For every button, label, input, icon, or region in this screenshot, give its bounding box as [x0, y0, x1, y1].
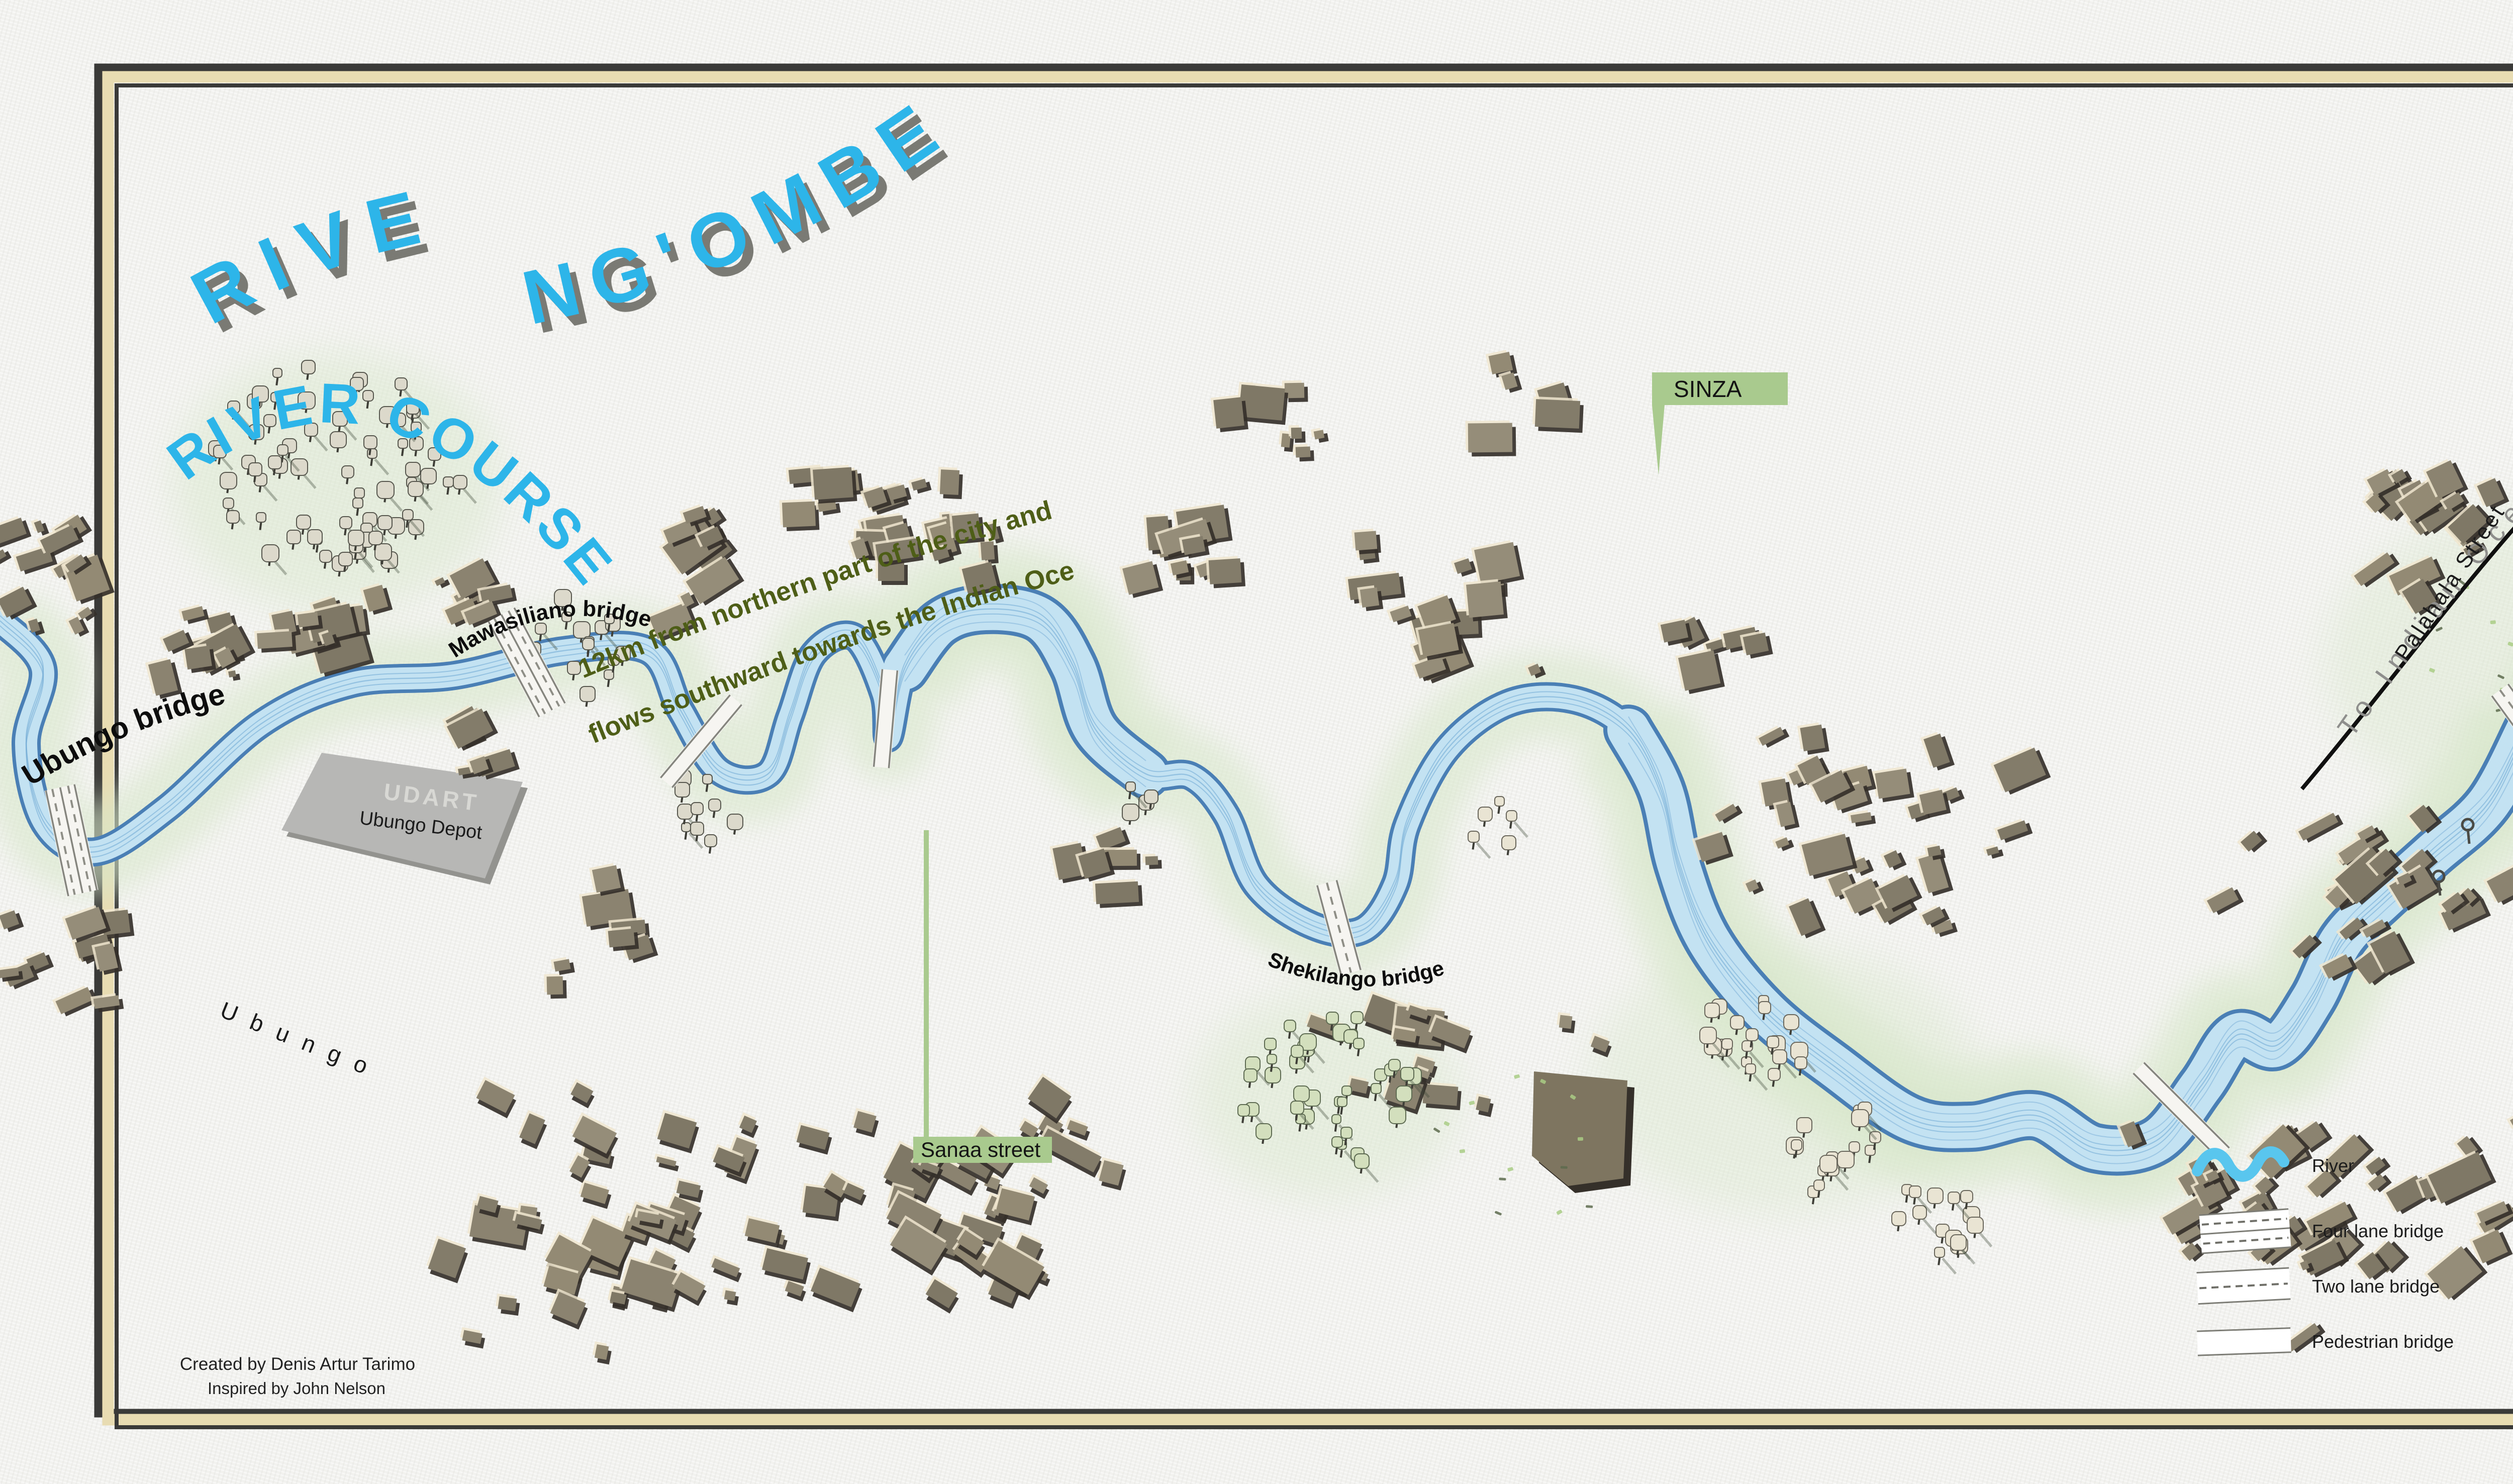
credits: Created by Denis Artur Tarimo Inspired b… [180, 1354, 415, 1398]
building [178, 603, 209, 625]
sanaa-leader-line [924, 830, 929, 1139]
building [551, 956, 575, 976]
building [1473, 1094, 1495, 1117]
building [908, 475, 932, 496]
building [793, 1122, 834, 1155]
building [1994, 817, 2033, 845]
tree [1506, 811, 1527, 837]
legend-pedestrian-label: Pedestrian bridge [2312, 1331, 2454, 1352]
scrub-mark [1469, 1101, 1475, 1105]
building [546, 1289, 591, 1330]
building [2506, 1108, 2513, 1135]
building [568, 1112, 621, 1159]
legend-two-lane-label: Two lane bridge [2312, 1276, 2440, 1297]
title-word2: NG'OMBE [515, 80, 964, 341]
legend-four-lane-swatch [2199, 1209, 2291, 1253]
building [810, 464, 857, 504]
building [1920, 730, 1955, 772]
scrub-mark [1507, 1167, 1514, 1172]
building [1142, 853, 1162, 869]
building [921, 1276, 962, 1314]
scrub-mark [1499, 1177, 1506, 1180]
building [1755, 723, 1789, 751]
legend-two-lane-swatch [2196, 1268, 2290, 1304]
legend-four-lane-label: Four lane bridge [2312, 1221, 2444, 1241]
tree [580, 686, 595, 707]
building [1872, 765, 1914, 803]
tree [1468, 831, 1490, 858]
building [721, 1288, 740, 1306]
building [1466, 420, 1516, 456]
sinza-label: SINZA [1674, 376, 1742, 402]
tree [1927, 1188, 1943, 1209]
building [1351, 528, 1381, 555]
scrub-mark [1494, 1211, 1502, 1216]
building [1772, 834, 1794, 853]
building [735, 1112, 761, 1138]
building [1786, 895, 1826, 941]
building [780, 499, 820, 531]
building [653, 1153, 681, 1171]
tree [1122, 804, 1139, 825]
tree [1892, 1212, 1906, 1231]
building [591, 1341, 613, 1364]
building [1293, 444, 1314, 462]
building [589, 862, 625, 897]
tree [1502, 836, 1516, 855]
sanaa-callout: Sanaa street [913, 830, 1052, 1163]
tree [1951, 1235, 1974, 1264]
building [1990, 744, 2051, 797]
building [1119, 558, 1163, 600]
sanaa-street-label: Sanaa street [921, 1138, 1040, 1161]
building [424, 1235, 470, 1283]
scrub-mark [1556, 1210, 1563, 1215]
river-map-svg: UDART Ubungo Depot RIVER NG'OMBE RIVER N… [0, 0, 2513, 1484]
building [1532, 397, 1584, 433]
building [2203, 883, 2244, 918]
building [459, 1327, 487, 1349]
building [1675, 647, 1725, 696]
building [654, 1110, 701, 1153]
building [1773, 799, 1799, 832]
scrub-mark [1586, 1205, 1593, 1208]
frame-tan-band [108, 77, 2513, 1420]
building [577, 1179, 613, 1209]
tree [1913, 1206, 1936, 1233]
building [1797, 722, 1829, 756]
building [0, 907, 24, 934]
building [472, 1076, 519, 1118]
building [515, 1110, 549, 1149]
tree [691, 803, 703, 822]
tree [727, 814, 743, 835]
building [566, 1079, 598, 1109]
building [807, 1264, 864, 1312]
legend-pedestrian-swatch [2197, 1328, 2291, 1355]
building [1880, 846, 1906, 873]
building [2237, 827, 2267, 856]
building [1451, 555, 1477, 578]
ubungo-area-label: Ubungo [217, 997, 385, 1084]
title-word1: RIVER [0, 0, 444, 340]
building [1848, 809, 1876, 828]
map-canvas: UDART Ubungo Depot RIVER NG'OMBE RIVER N… [0, 0, 2513, 1484]
tree [1967, 1217, 1991, 1246]
building [1798, 830, 1857, 880]
building [495, 1294, 521, 1316]
tree [705, 835, 717, 853]
building [544, 973, 566, 999]
credits-line2: Inspired by John Nelson [208, 1379, 385, 1398]
building [1311, 427, 1329, 444]
credits-line1: Created by Denis Artur Tarimo [180, 1354, 415, 1374]
scrub-mark [1460, 1149, 1466, 1153]
tree [1478, 807, 1492, 827]
building [254, 628, 297, 653]
building [741, 1215, 784, 1248]
building [1983, 843, 2004, 860]
building [1206, 556, 1245, 589]
legend-river-label: River [2312, 1155, 2354, 1176]
scrub-mark [2490, 620, 2496, 624]
building [758, 1245, 812, 1284]
scrub-mark [1578, 1137, 1583, 1141]
building [0, 545, 12, 568]
scrub-mark [1514, 1074, 1520, 1079]
tree [1495, 797, 1504, 814]
building [937, 467, 963, 499]
sinza-callout: SINZA [1652, 372, 1788, 475]
building [1023, 1073, 1076, 1124]
scrub-mark [1561, 1166, 1568, 1169]
building [1093, 878, 1143, 908]
building [2295, 809, 2343, 846]
building [708, 1255, 744, 1282]
large-building [1532, 1071, 1634, 1193]
building [850, 1108, 881, 1138]
building [1556, 1012, 1576, 1033]
